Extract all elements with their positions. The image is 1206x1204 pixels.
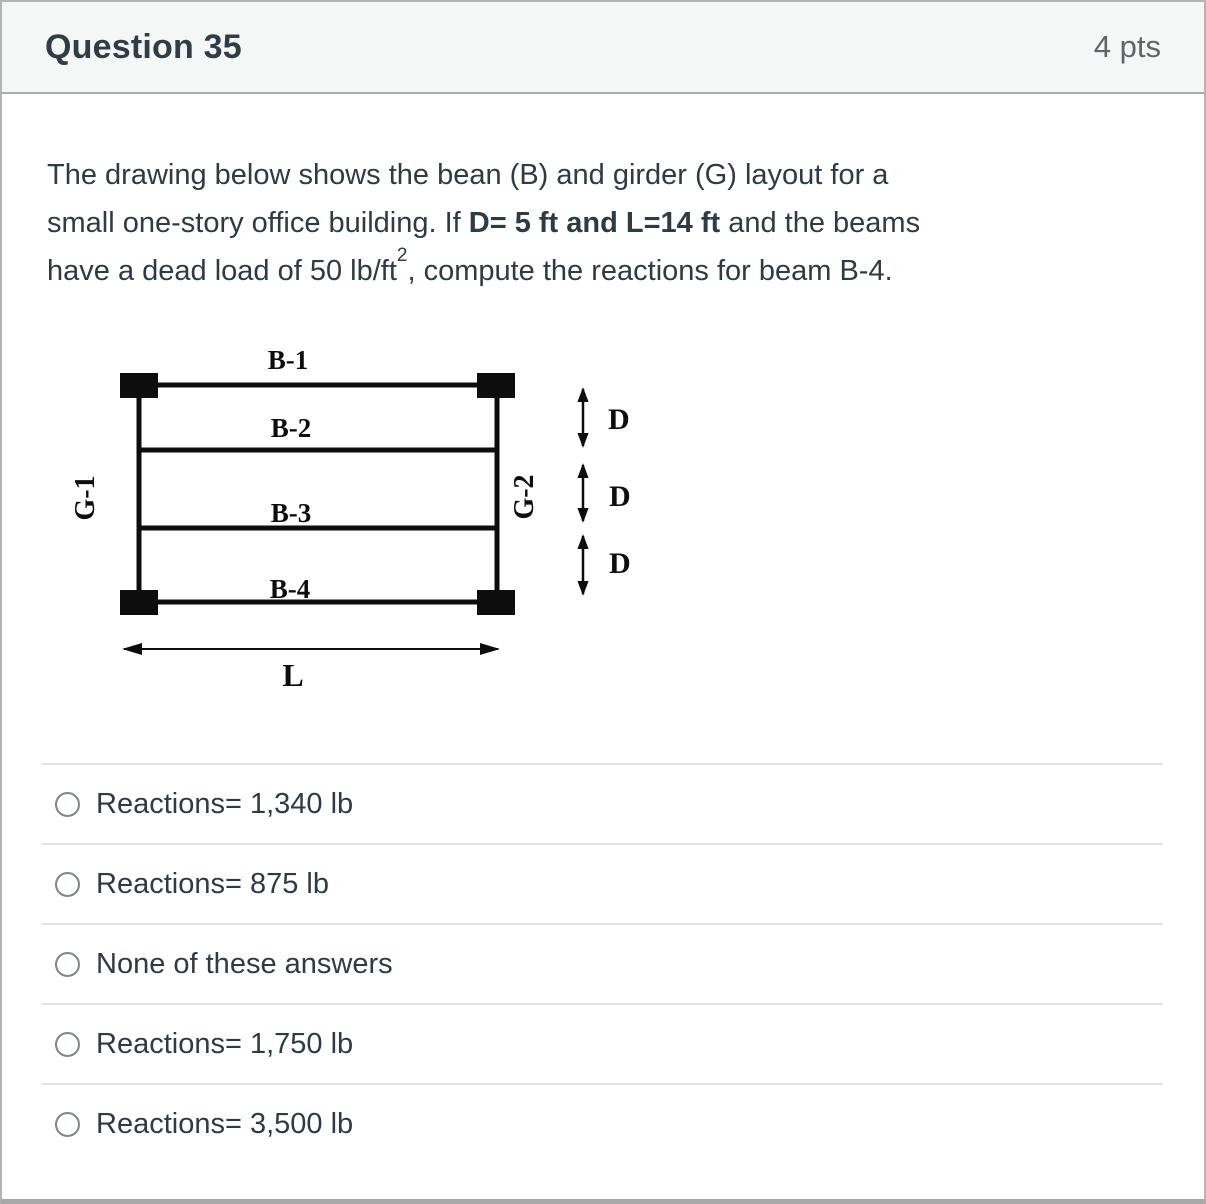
answer-option-2[interactable]: Reactions= 875 lb (42, 843, 1163, 923)
question-line-1-text: The drawing below shows the bean (B) and… (47, 159, 888, 191)
question-line-3-pre: have a dead load of 50 lb/ft (47, 255, 397, 287)
answer-option-2-label[interactable]: Reactions= 875 lb (96, 868, 329, 901)
question-line-1: The drawing below shows the bean (B) and… (47, 151, 1172, 199)
question-line-3: have a dead load of 50 lb/ft2, compute t… (47, 247, 1172, 295)
girder-g2-label: G-2 (509, 474, 540, 519)
question-line-2-post: and the beams (720, 207, 920, 239)
radio-button-icon[interactable] (55, 1112, 80, 1137)
answer-option-5[interactable]: Reactions= 3,500 lb (42, 1083, 1163, 1163)
question-text: The drawing below shows the bean (B) and… (47, 151, 1172, 295)
answer-option-3-label[interactable]: None of these answers (96, 948, 393, 981)
answer-options: Reactions= 1,340 lb Reactions= 875 lb No… (42, 763, 1163, 1163)
question-points: 4 pts (1094, 29, 1161, 65)
answer-option-4[interactable]: Reactions= 1,750 lb (42, 1003, 1163, 1083)
beam-b2-label: B-2 (271, 413, 312, 443)
answer-option-1-label[interactable]: Reactions= 1,340 lb (96, 788, 353, 821)
answer-option-1[interactable]: Reactions= 1,340 lb (42, 763, 1163, 843)
dim-label-d2: D (609, 480, 631, 513)
beam-b4-label: B-4 (270, 574, 311, 604)
dim-label-d1: D (608, 403, 630, 436)
radio-button-icon[interactable] (55, 872, 80, 897)
answer-option-5-label[interactable]: Reactions= 3,500 lb (96, 1108, 353, 1141)
question-line-2-pre: small one-story office building. If (47, 207, 469, 239)
question-card: Question 35 4 pts The drawing below show… (0, 0, 1206, 1204)
corner-columns (120, 373, 515, 615)
question-header: Question 35 4 pts (2, 2, 1204, 94)
radio-button-icon[interactable] (55, 952, 80, 977)
question-line-2: small one-story office building. If D= 5… (47, 199, 1172, 247)
question-line-3-post: , compute the reactions for beam B-4. (407, 255, 892, 287)
span-label-l: L (282, 657, 303, 693)
radio-button-icon[interactable] (55, 792, 80, 817)
dim-label-d3: D (609, 547, 631, 580)
beam-b1-label: B-1 (268, 345, 309, 375)
answer-option-4-label[interactable]: Reactions= 1,750 lb (96, 1028, 353, 1061)
beam-b3-label: B-3 (271, 498, 312, 528)
question-title: Question 35 (45, 28, 242, 67)
beam-girder-diagram: B-1 B-2 B-3 B-4 G-1 G-2 D D D L (60, 334, 680, 704)
radio-button-icon[interactable] (55, 1032, 80, 1057)
question-line-3-superscript: 2 (397, 245, 408, 266)
answer-option-3[interactable]: None of these answers (42, 923, 1163, 1003)
girder-g1-label: G-1 (70, 475, 101, 520)
question-line-2-bold: D= 5 ft and L=14 ft (469, 207, 720, 239)
